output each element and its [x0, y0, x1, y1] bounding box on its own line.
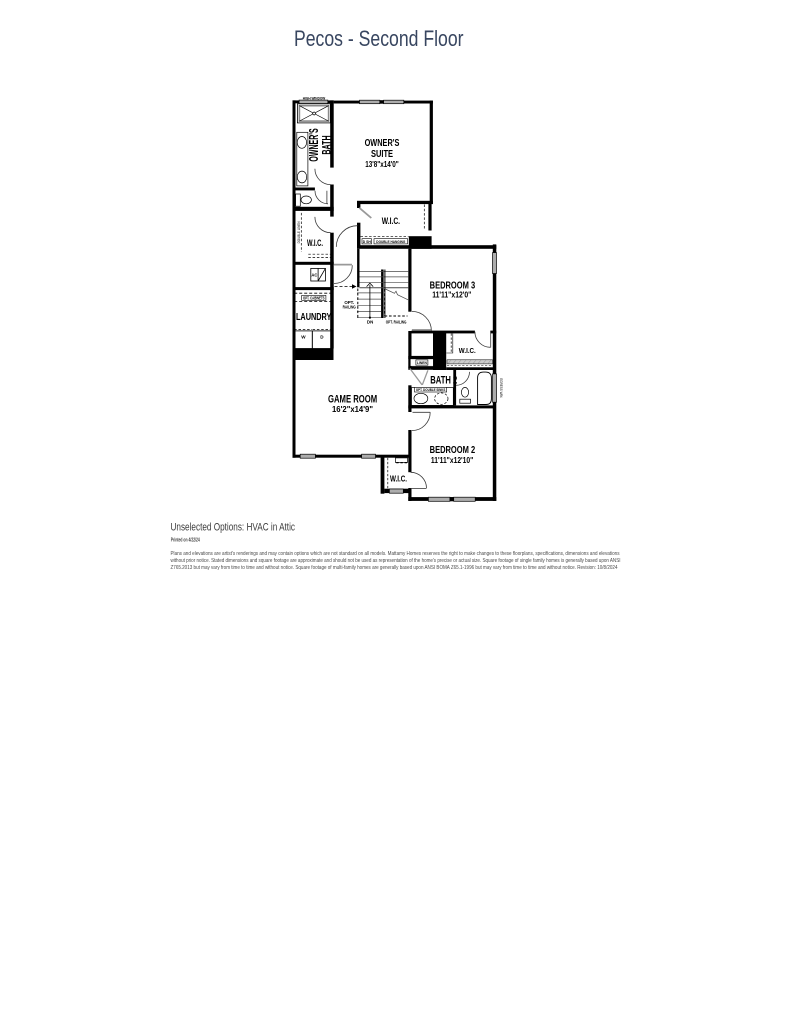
svg-text:OPT. CABINETS: OPT. CABINETS: [303, 295, 325, 300]
svg-text:EGRESS WIN.: EGRESS WIN.: [499, 378, 503, 398]
svg-text:Pecos - Second Floor: Pecos - Second Floor: [294, 26, 464, 51]
svg-text:W.I.C.: W.I.C.: [307, 238, 323, 249]
svg-text:Printed on 4/22/24: Printed on 4/22/24: [171, 538, 200, 544]
svg-text:DOUBLE LINEN: DOUBLE LINEN: [297, 221, 301, 243]
svg-text:BATH 2: BATH 2: [430, 375, 457, 387]
svg-text:W.I.C.: W.I.C.: [390, 474, 407, 484]
svg-text:DN: DN: [367, 319, 373, 324]
svg-text:W.I.C.: W.I.C.: [459, 348, 476, 355]
svg-text:without prior notice. Stated d: without prior notice. Stated dimensions …: [170, 558, 621, 564]
svg-text:W.I.C.: W.I.C.: [382, 216, 400, 227]
svg-text:D SH: D SH: [363, 240, 372, 244]
svg-text:11'11"x12'10": 11'11"x12'10": [431, 455, 473, 465]
svg-text:LINEN: LINEN: [417, 361, 427, 365]
svg-text:13'8"x14'0": 13'8"x14'0": [365, 159, 399, 169]
svg-text:OPT. DOUBLE SINKS: OPT. DOUBLE SINKS: [416, 388, 446, 392]
svg-text:AC: AC: [311, 273, 317, 278]
svg-text:16'2"x14'9": 16'2"x14'9": [332, 404, 373, 414]
svg-text:BATH: BATH: [319, 135, 333, 154]
svg-text:OWNER'S: OWNER'S: [365, 138, 400, 149]
svg-text:Plans and elevations are artis: Plans and elevations are artist's render…: [171, 551, 620, 557]
svg-text:HIGH WINDOW: HIGH WINDOW: [303, 95, 326, 100]
svg-text:Unselected Options: HVAC in At: Unselected Options: HVAC in Attic: [171, 521, 296, 533]
svg-text:Z765.2013 but may vary from ti: Z765.2013 but may vary from time to time…: [171, 565, 619, 571]
svg-text:11'11"x12'0": 11'11"x12'0": [432, 289, 471, 299]
svg-text:LAUNDRY: LAUNDRY: [296, 312, 332, 323]
svg-text:DOUBLE HANGING: DOUBLE HANGING: [376, 240, 405, 244]
svg-text:W: W: [301, 335, 306, 340]
svg-text:OPT. RAILING: OPT. RAILING: [386, 319, 407, 324]
svg-text:RAILING: RAILING: [343, 305, 357, 310]
